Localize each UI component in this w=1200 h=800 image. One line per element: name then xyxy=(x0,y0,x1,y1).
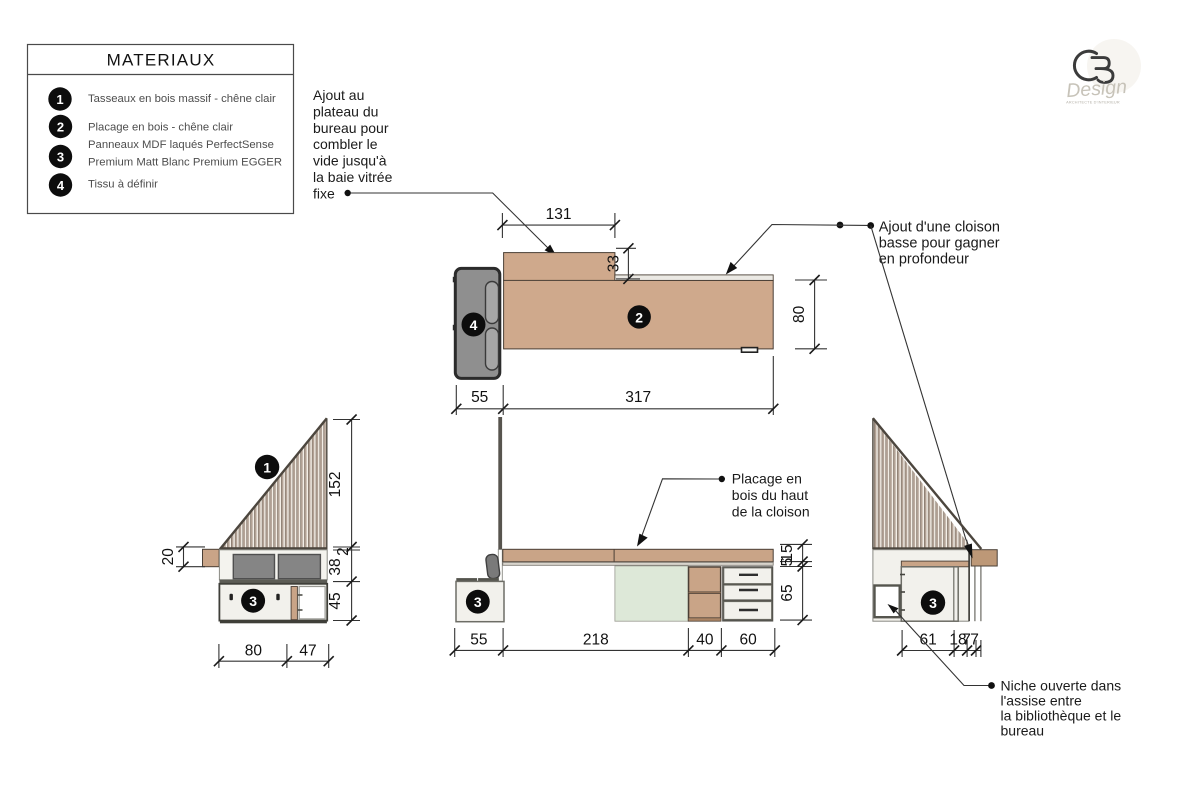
svg-text:la baie vitrée: la baie vitrée xyxy=(313,169,393,185)
svg-text:Placage en: Placage en xyxy=(732,471,802,487)
svg-text:plateau du: plateau du xyxy=(313,103,378,119)
svg-text:2: 2 xyxy=(335,547,352,556)
svg-text:45: 45 xyxy=(327,592,344,609)
svg-text:bureau pour: bureau pour xyxy=(313,120,389,136)
svg-text:1: 1 xyxy=(263,460,271,476)
svg-text:1: 1 xyxy=(56,92,63,107)
svg-text:55: 55 xyxy=(471,389,488,406)
svg-text:2: 2 xyxy=(57,120,64,135)
svg-text:38: 38 xyxy=(327,558,344,575)
svg-text:fixe: fixe xyxy=(313,185,335,201)
svg-text:80: 80 xyxy=(791,305,808,323)
svg-text:4: 4 xyxy=(470,317,478,333)
svg-text:ARCHITECTE D'INTERIEUR: ARCHITECTE D'INTERIEUR xyxy=(1066,101,1120,105)
svg-text:Tissu à définir: Tissu à définir xyxy=(88,179,158,191)
svg-text:l'assise entre: l'assise entre xyxy=(1001,693,1082,709)
svg-text:combler le: combler le xyxy=(313,136,378,152)
svg-text:Tasseaux en bois massif - chên: Tasseaux en bois massif - chêne clair xyxy=(88,93,276,105)
svg-text:3: 3 xyxy=(249,593,257,609)
svg-text:bureau: bureau xyxy=(1001,723,1045,739)
svg-text:basse pour gagner: basse pour gagner xyxy=(879,235,1000,251)
svg-text:218: 218 xyxy=(583,631,609,648)
svg-text:7: 7 xyxy=(970,632,979,649)
svg-text:de la cloison: de la cloison xyxy=(732,503,810,519)
svg-text:3: 3 xyxy=(929,595,937,611)
svg-text:3: 3 xyxy=(474,594,482,610)
svg-text:Premium Matt Blanc Premium EGG: Premium Matt Blanc Premium EGGER xyxy=(88,156,282,168)
svg-text:47: 47 xyxy=(299,643,316,660)
svg-text:33: 33 xyxy=(606,255,623,272)
svg-text:Placage en bois - chêne clair: Placage en bois - chêne clair xyxy=(88,122,233,134)
svg-text:bois du haut: bois du haut xyxy=(732,487,808,503)
svg-text:40: 40 xyxy=(696,631,714,648)
svg-text:131: 131 xyxy=(546,206,572,223)
svg-text:Ajout d'une cloison: Ajout d'une cloison xyxy=(879,219,1000,235)
svg-text:80: 80 xyxy=(245,643,263,660)
svg-text:Niche ouverte dans: Niche ouverte dans xyxy=(1001,678,1122,694)
svg-text:MATERIAUX: MATERIAUX xyxy=(107,51,216,70)
svg-text:55: 55 xyxy=(470,631,487,648)
svg-text:en profondeur: en profondeur xyxy=(879,252,969,268)
svg-text:317: 317 xyxy=(625,389,651,406)
svg-text:2: 2 xyxy=(635,309,643,325)
svg-text:152: 152 xyxy=(327,471,344,497)
svg-text:60: 60 xyxy=(739,631,757,648)
svg-text:65: 65 xyxy=(779,584,796,601)
svg-text:vide jusqu'à: vide jusqu'à xyxy=(313,153,387,169)
svg-text:4: 4 xyxy=(57,178,65,193)
svg-text:3: 3 xyxy=(57,150,64,165)
svg-text:Design: Design xyxy=(1066,76,1128,102)
svg-text:Panneaux MDF laqués PerfectSen: Panneaux MDF laqués PerfectSense xyxy=(88,139,274,151)
svg-text:Ajout au: Ajout au xyxy=(313,87,364,103)
svg-text:20: 20 xyxy=(160,548,177,566)
svg-text:5: 5 xyxy=(779,558,796,567)
svg-text:la bibliothèque et le: la bibliothèque et le xyxy=(1001,708,1122,724)
